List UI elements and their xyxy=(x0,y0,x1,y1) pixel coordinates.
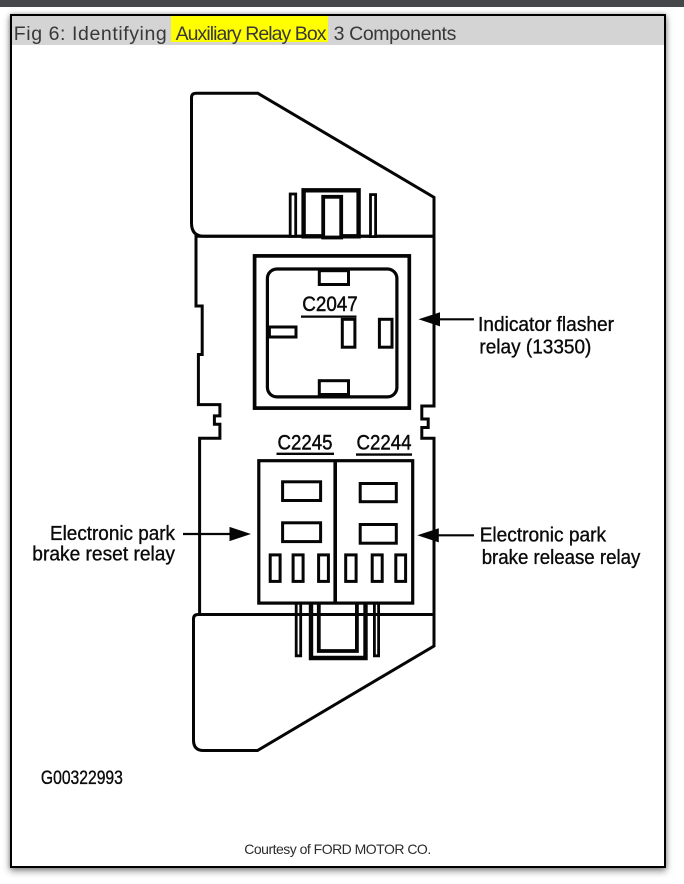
svg-text:C2245: C2245 xyxy=(278,430,333,454)
svg-text:Electronic park: Electronic park xyxy=(50,523,176,545)
svg-text:G00322993: G00322993 xyxy=(41,767,123,789)
svg-text:relay (13350): relay (13350) xyxy=(479,336,591,358)
svg-text:C2244: C2244 xyxy=(357,430,412,454)
svg-text:brake reset relay: brake reset relay xyxy=(32,543,175,565)
svg-text:Indicator flasher: Indicator flasher xyxy=(478,314,614,336)
svg-text:Electronic park: Electronic park xyxy=(480,525,607,547)
svg-text:C2047: C2047 xyxy=(302,292,358,316)
svg-text:brake release relay: brake release relay xyxy=(482,547,641,569)
